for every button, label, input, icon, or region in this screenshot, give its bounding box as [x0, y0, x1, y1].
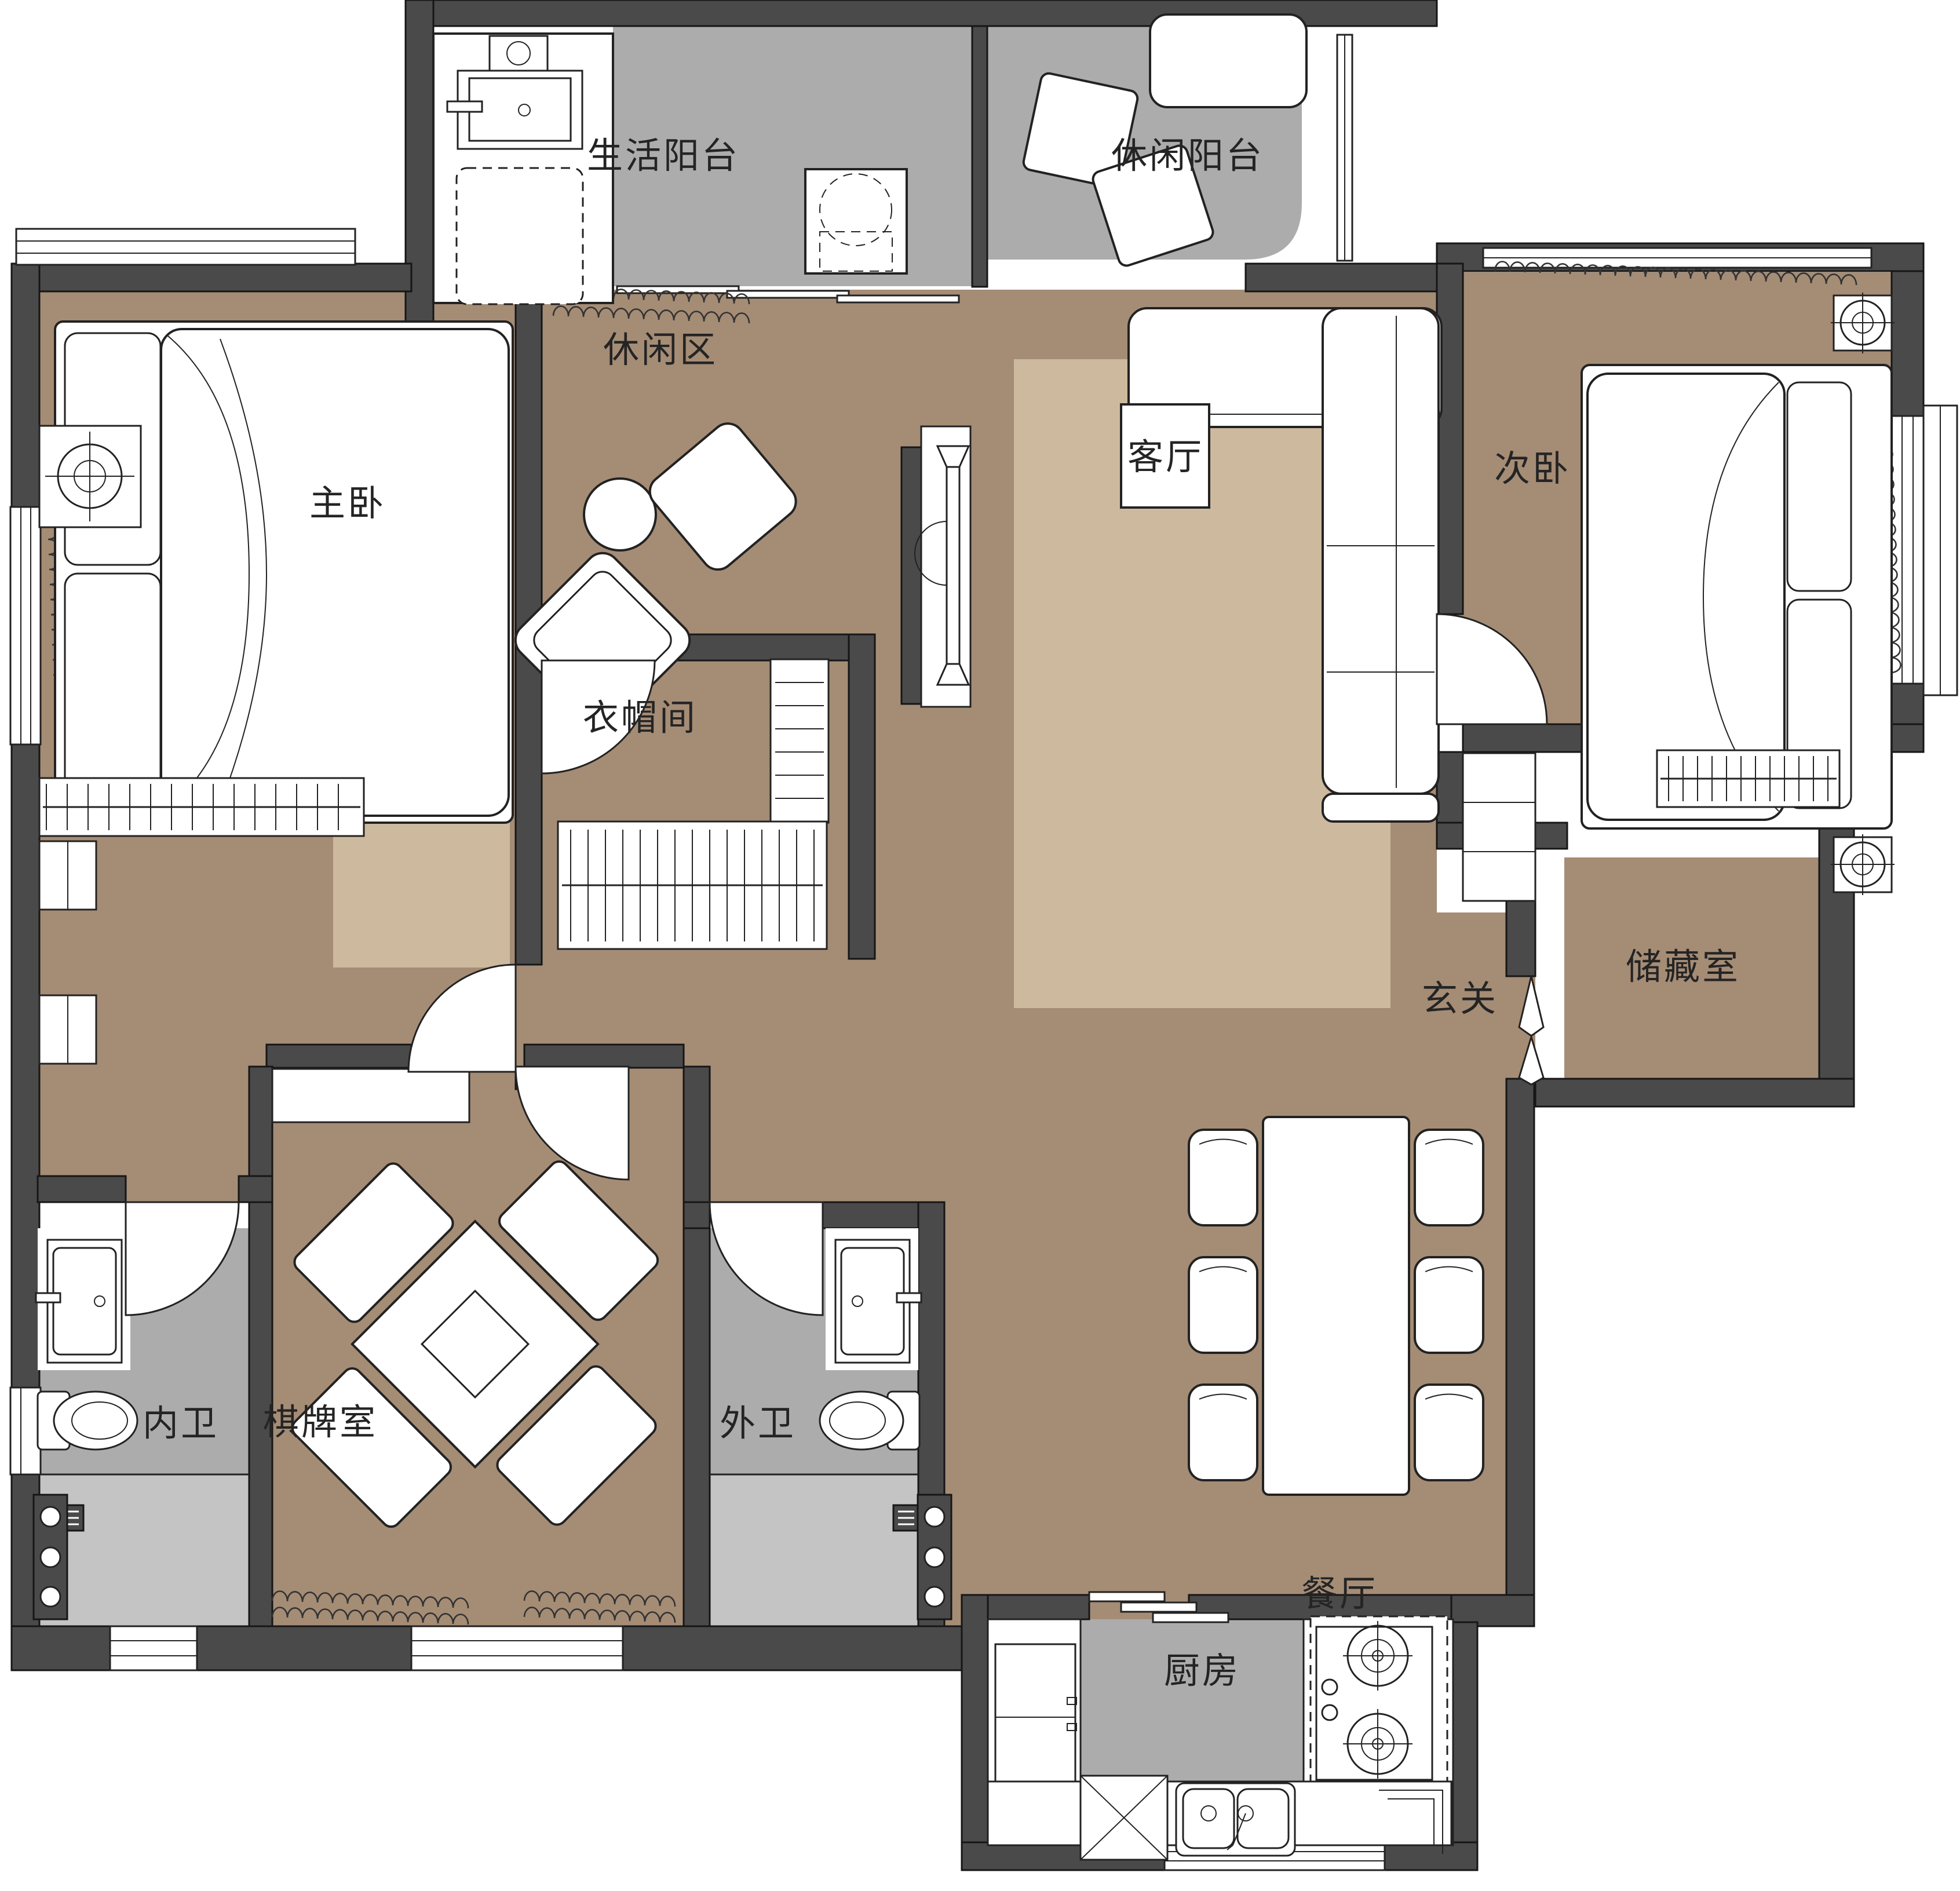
floor-outer-bathroom-shower: [710, 1474, 918, 1629]
floor-kitchen: [1081, 1619, 1304, 1793]
wall-bedroom2-west-lower: [1437, 752, 1463, 827]
wall-gameroom-north-left: [267, 1045, 411, 1068]
outerbath-toilet: [820, 1392, 919, 1450]
laundry-cabinet-inner: [469, 78, 571, 141]
label-leisure-area: 休闲区: [603, 331, 718, 370]
dining-table: [1263, 1117, 1409, 1495]
floor-inner-bathroom-shower: [38, 1474, 249, 1629]
wall-kitchen-east: [1451, 1622, 1477, 1870]
wall-bedroom2-east-upper: [1892, 271, 1923, 416]
window-master-west: [10, 507, 41, 744]
wall-southeast: [1535, 1079, 1854, 1107]
wall-innerbath-north-right: [239, 1176, 272, 1202]
wall-outerbath-stub: [684, 1202, 710, 1228]
label-kitchen: 厨房: [1164, 1652, 1240, 1691]
master-pillow-2: [65, 574, 160, 805]
tv-screen-icon: [947, 467, 959, 664]
window-south-1: [110, 1626, 197, 1670]
window-bedroom2-north: [1483, 248, 1871, 268]
tv-unit: [915, 426, 970, 707]
label-outer-bathroom: 外卫: [720, 1404, 796, 1444]
innerbath-pipe-shaft: [34, 1495, 67, 1619]
outerbath-floor-drain-icon: [893, 1505, 919, 1531]
wall-innerbath-north-left: [38, 1176, 126, 1202]
wall-cloakroom-east: [849, 634, 875, 959]
innerbath-toilet: [38, 1392, 137, 1450]
dining-chairs-left: [1189, 1130, 1257, 1480]
label-life-balcony: 生活阳台: [587, 137, 740, 176]
label-storage-room: 储藏室: [1626, 948, 1740, 987]
master-mattress: [161, 329, 509, 816]
master-wardrobe: [39, 778, 364, 836]
innerbath-faucet-icon: [36, 1293, 60, 1302]
washing-machine: [805, 169, 907, 273]
label-inner-bathroom: 内卫: [143, 1404, 219, 1444]
bay-window-northwest: [16, 229, 355, 265]
bed2-nightstand-bottom: [1831, 834, 1895, 895]
wall-south-2: [197, 1626, 411, 1670]
wall-bedroom2-west-upper: [1437, 264, 1463, 614]
wall-gameroom-east: [684, 1067, 710, 1628]
wall-tv-feature: [901, 447, 921, 704]
bed2-pillow-1: [1787, 382, 1851, 591]
bed2-nightstand-top: [1831, 293, 1895, 353]
kitchen-base-cabinet: [1081, 1776, 1167, 1860]
window-south-2: [411, 1626, 623, 1670]
balcony-cabinet: [1150, 14, 1306, 107]
wall-entry-stub: [1506, 901, 1535, 976]
sofa-armrest: [1323, 794, 1439, 822]
label-cloakroom: 衣帽间: [583, 699, 698, 738]
sofa-right-section: [1323, 308, 1439, 794]
wall-outerbath-north-right: [823, 1202, 918, 1228]
innerbath-basin: [53, 1248, 116, 1355]
wall-kitchen-south-right: [1385, 1842, 1477, 1870]
label-second-bedroom: 次卧: [1494, 450, 1571, 489]
label-game-room: 棋牌室: [263, 1403, 378, 1443]
gas-stove: [1311, 1616, 1447, 1790]
label-dining-room: 餐厅: [1301, 1575, 1378, 1614]
floor-plan-drawing: 生活阳台 休闲阳台 休闲区 主卧 客厅 次卧 衣帽间 玄关 储藏室 内卫 棋牌室…: [0, 0, 1960, 1891]
bay-window-bedroom2-east: [1892, 406, 1957, 695]
wall-kitchen-west: [962, 1595, 988, 1870]
outerbath-faucet-icon: [897, 1293, 921, 1302]
cloakroom-wardrobe: [558, 822, 827, 949]
wall-master-north: [38, 264, 411, 291]
outerbath-pipe-shaft: [918, 1495, 951, 1619]
floor-plan-page: 生活阳台 休闲阳台 休闲区 主卧 客厅 次卧 衣帽间 玄关 储藏室 内卫 棋牌室…: [0, 0, 1960, 1891]
laundry-basket-dashed: [457, 168, 583, 304]
outerbath-basin: [841, 1248, 904, 1355]
floor-corridor-south: [684, 1067, 944, 1206]
laundry-faucet-icon: [447, 101, 482, 112]
washing-machine-body: [805, 169, 907, 273]
entry-cabinet: [1463, 753, 1535, 901]
wall-gameroom-west: [249, 1067, 272, 1626]
window-bath-west: [10, 1388, 41, 1474]
leisure-side-table: [584, 479, 656, 550]
window-leisure-balcony-east: [1337, 35, 1352, 261]
label-entry-hall: 玄关: [1422, 980, 1498, 1019]
label-leisure-balcony: 休闲阳台: [1111, 137, 1264, 176]
dining-chairs-right: [1415, 1130, 1483, 1480]
wall-dining-east: [1506, 1079, 1534, 1626]
wall-leisure-balcony-south: [1246, 264, 1437, 291]
dining-furniture: [1189, 1117, 1483, 1495]
wall-south-3: [623, 1626, 988, 1670]
label-living-room: 客厅: [1127, 438, 1204, 477]
gameroom-cabinet: [272, 1069, 469, 1122]
hall-wardrobe: [1657, 750, 1839, 807]
wall-kitchen-north-left: [988, 1595, 1089, 1619]
kitchen-sink: [1176, 1783, 1295, 1856]
wall-gameroom-north-right: [524, 1045, 684, 1068]
label-master-bedroom: 主卧: [309, 484, 386, 524]
wall-balcony-divider: [972, 26, 987, 287]
wall-south-1: [12, 1626, 110, 1670]
